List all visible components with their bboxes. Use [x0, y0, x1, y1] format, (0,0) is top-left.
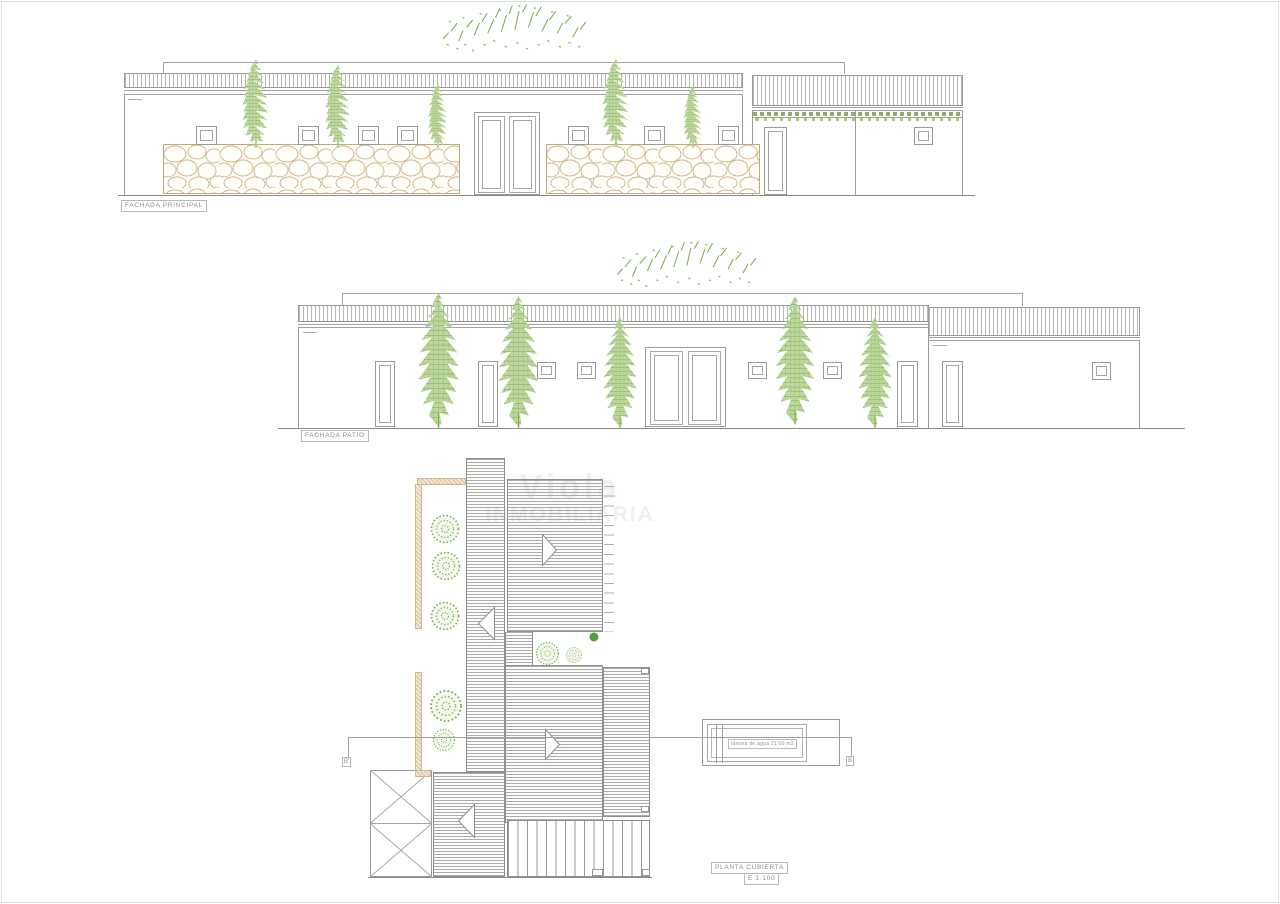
poplar-tree-icon [415, 293, 462, 428]
bush-icon [427, 598, 463, 634]
roof-area [505, 632, 533, 666]
bush-icon [564, 645, 584, 665]
planter-strip [415, 770, 431, 777]
slope-arrow-icon [545, 729, 560, 760]
scale-label: E 1:100 [744, 873, 779, 885]
poplar-tree-icon [495, 296, 542, 428]
window [718, 126, 739, 145]
slope-arrow-icon [478, 607, 495, 640]
door [897, 361, 918, 427]
window [914, 127, 933, 145]
vine-icon [753, 111, 962, 122]
door [942, 361, 963, 427]
bush-icon [428, 548, 464, 584]
window [577, 362, 596, 379]
drawing-label: FACHADA PRINCIPAL [121, 200, 207, 212]
annex-fascia [928, 307, 1140, 336]
cypress-tree-icon [321, 65, 355, 148]
climbing-plant-icon [437, 2, 593, 60]
section-marker-b-prime: B' [342, 757, 351, 767]
double-door [474, 112, 540, 195]
door [764, 127, 787, 195]
window [298, 126, 319, 145]
cypress-tree-icon [599, 58, 633, 148]
column-base [641, 668, 649, 674]
window [358, 126, 379, 145]
annex-fascia [752, 75, 963, 106]
column-base [642, 869, 650, 876]
column-base [641, 806, 649, 812]
ground-line [278, 428, 1185, 429]
stone-wall [546, 144, 760, 194]
drawing-label: FACHADA PATIO [301, 430, 369, 442]
section-line [348, 737, 349, 757]
door [375, 361, 395, 427]
pool-label: lámina de agua 21'00 m2 [728, 739, 797, 749]
poplar-tree-icon [773, 293, 817, 428]
watermark: Viola INMOBILIARIA [452, 470, 688, 526]
section-line [851, 737, 852, 756]
window [196, 126, 217, 145]
pergola [370, 770, 432, 877]
stone-wall [163, 144, 460, 194]
bush-icon [430, 726, 458, 754]
bush-icon [426, 686, 466, 726]
bush-icon [533, 639, 562, 668]
sheet: FACHADA PRINCIPAL FACHADA PATIO [0, 0, 1280, 904]
climbing-plant-icon [612, 238, 762, 296]
section-marker-b: B [846, 756, 854, 766]
watermark-line1: Viola [452, 470, 688, 504]
slope-arrow-icon [542, 534, 557, 566]
planter-strip [415, 484, 422, 629]
tree-dot-icon [589, 632, 599, 642]
window [568, 126, 589, 145]
cypress-tree-icon [239, 58, 273, 149]
cypress-tree-icon [680, 86, 706, 148]
poplar-tree-icon [598, 317, 642, 428]
stairs [507, 820, 650, 877]
column-base [592, 869, 603, 876]
window [644, 126, 665, 145]
plan-base-line [368, 877, 652, 878]
slope-arrow-icon [458, 804, 475, 838]
planter-strip [415, 672, 422, 771]
watermark-line2: INMOBILIARIA [452, 504, 688, 526]
annex-divider [855, 111, 856, 195]
pool: lámina de agua 21'00 m2 [702, 719, 840, 766]
cypress-tree-icon [424, 84, 452, 148]
window [397, 126, 418, 145]
window [748, 362, 767, 379]
window [823, 362, 842, 379]
roof-area [603, 667, 650, 817]
section-line [348, 737, 852, 738]
poplar-tree-icon [853, 317, 897, 428]
ground-line [118, 195, 975, 196]
window [1092, 362, 1111, 380]
double-door [645, 347, 726, 427]
